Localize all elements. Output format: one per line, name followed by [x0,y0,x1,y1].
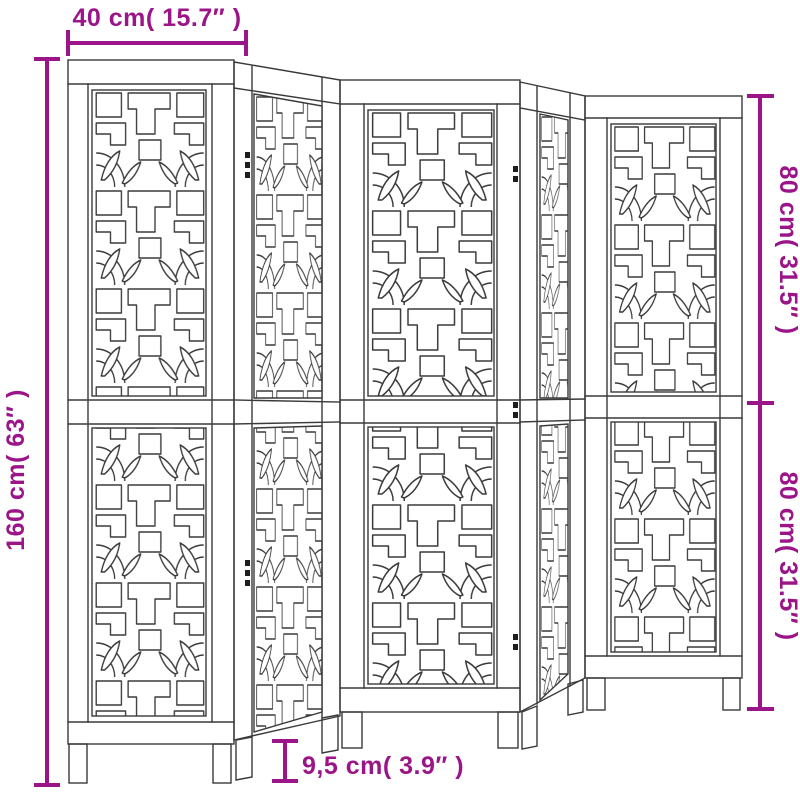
dimension-right-lower-label: 80 cm( 31.5″ ) [774,471,800,640]
panel-2 [234,62,340,780]
panel-5-lattice-lower [611,422,716,652]
panel-2-foot-right [322,715,338,753]
dimension-left-label: 160 cm( 63″ ) [2,389,30,551]
panel-3-foot-right [498,712,518,748]
panel-2-lattice-upper [254,94,322,398]
dimension-bottom: 9,5 cm( 3.9″ ) [272,741,464,781]
panel-3 [340,80,520,748]
panel-1-foot-right [213,744,231,783]
dimension-left: 160 cm( 63″ ) [2,59,60,785]
dimension-top-label: 40 cm( 15.7″ ) [72,4,241,32]
panel-4-lattice-lower [540,424,568,700]
panel-3-lattice-lower [368,427,494,684]
dimension-top: 40 cm( 15.7″ ) [68,4,246,56]
panel-1-lattice-lower [92,428,206,716]
panel-2-foot-left [236,737,252,780]
divider-drawing: 40 cm( 15.7″ ) 160 cm( 63″ ) 80 cm( 31.5… [0,0,800,800]
panel-3-lattice-upper [368,110,494,396]
panel-4-foot-left [522,706,537,749]
panel-2-lattice-lower [254,426,322,732]
product-dimension-diagram: 40 cm( 15.7″ ) 160 cm( 63″ ) 80 cm( 31.5… [0,0,800,800]
panel-5-lattice-upper [611,124,716,392]
panel-1 [68,60,234,783]
panel-4 [520,82,585,749]
panel-5 [585,96,742,710]
panel-4-lattice-upper [540,114,568,398]
panel-1-foot-left [69,744,87,783]
panel-5-foot-left [587,678,605,710]
dimension-right-upper-label: 80 cm( 31.5″ ) [774,165,800,334]
panel-3-foot-left [342,712,362,748]
panel-1-lattice-upper [92,90,206,396]
panel-5-foot-right [723,678,740,710]
dimension-right-upper: 80 cm( 31.5″ ) [747,96,800,403]
dimension-right-lower: 80 cm( 31.5″ ) [747,403,800,709]
dimension-bottom-label: 9,5 cm( 3.9″ ) [302,752,464,780]
